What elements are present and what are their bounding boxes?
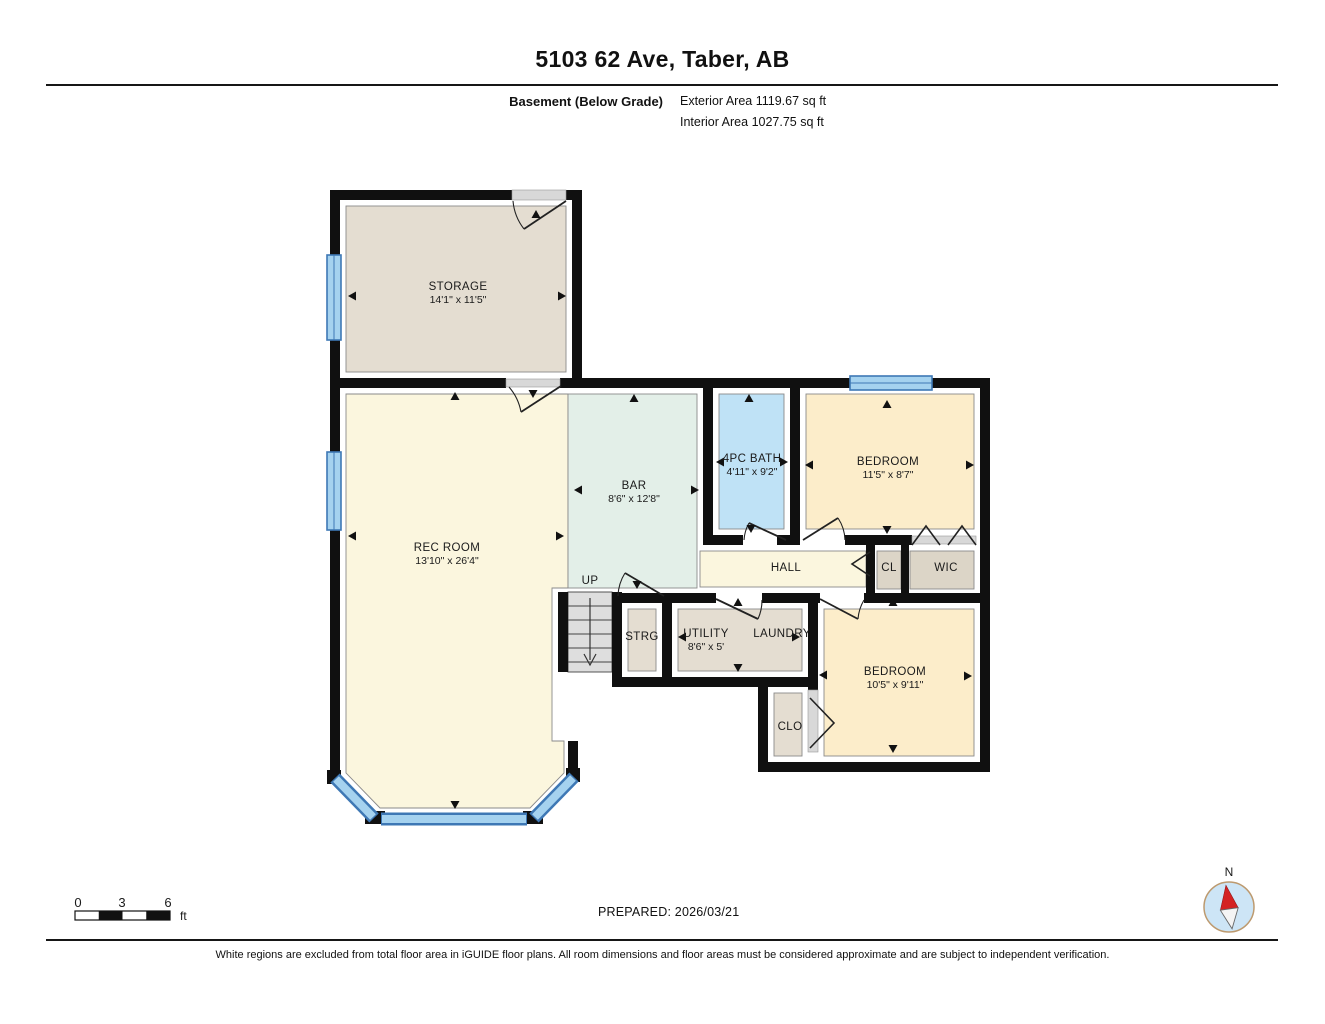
scale-unit: ft — [180, 909, 187, 923]
scale-tick-6: 6 — [164, 895, 171, 910]
bedroom1-label: BEDROOM — [857, 456, 919, 468]
bedroom2-label: BEDROOM — [864, 666, 926, 678]
bedroom2-dims: 10'5" x 9'11" — [867, 679, 924, 691]
wic-label: WIC — [934, 562, 958, 574]
floor-plan-drawing: STORAGE 14'1" x 11'5" REC ROOM 13'10" x … — [0, 0, 1325, 1024]
stairs-up-label: UP — [582, 575, 599, 587]
storage-dims: 14'1" x 11'5" — [430, 294, 487, 306]
stairs — [568, 592, 612, 672]
floorplan-page: { "header": { "title": "5103 62 Ave, Tab… — [0, 0, 1325, 1024]
compass-north-label: N — [1225, 865, 1234, 879]
storage-label: STORAGE — [429, 281, 488, 293]
rec-room-dims: 13'10" x 26'4" — [415, 555, 479, 567]
utility-label: UTILITY — [683, 628, 729, 640]
utility-laundry-area — [678, 609, 802, 671]
utility-dims: 8'6" x 5' — [688, 641, 724, 653]
scale-tick-0: 0 — [74, 895, 81, 910]
clo-label: CLO — [778, 721, 803, 733]
hall-label: HALL — [771, 562, 802, 574]
laundry-label: LAUNDRY — [753, 628, 811, 640]
compass: N — [1204, 865, 1254, 932]
prepared-date: PREPARED: 2026/03/21 — [598, 905, 739, 919]
bath-label: 4PC BATH — [723, 453, 782, 465]
scale-bar: 0 3 6 ft — [74, 895, 187, 923]
bar-label: BAR — [622, 480, 647, 492]
strg-label: STRG — [625, 631, 659, 643]
footer-divider — [46, 939, 1278, 941]
cl-label: CL — [881, 562, 897, 574]
rec-room-area — [346, 394, 568, 808]
rec-room-label: REC ROOM — [414, 542, 480, 554]
bedroom1-dims: 11'5" x 8'7" — [863, 469, 914, 481]
bath-dims: 4'11" x 9'2" — [727, 466, 778, 478]
scale-tick-3: 3 — [118, 895, 125, 910]
bar-dims: 8'6" x 12'8" — [608, 493, 660, 505]
disclaimer-text: White regions are excluded from total fl… — [0, 949, 1325, 961]
